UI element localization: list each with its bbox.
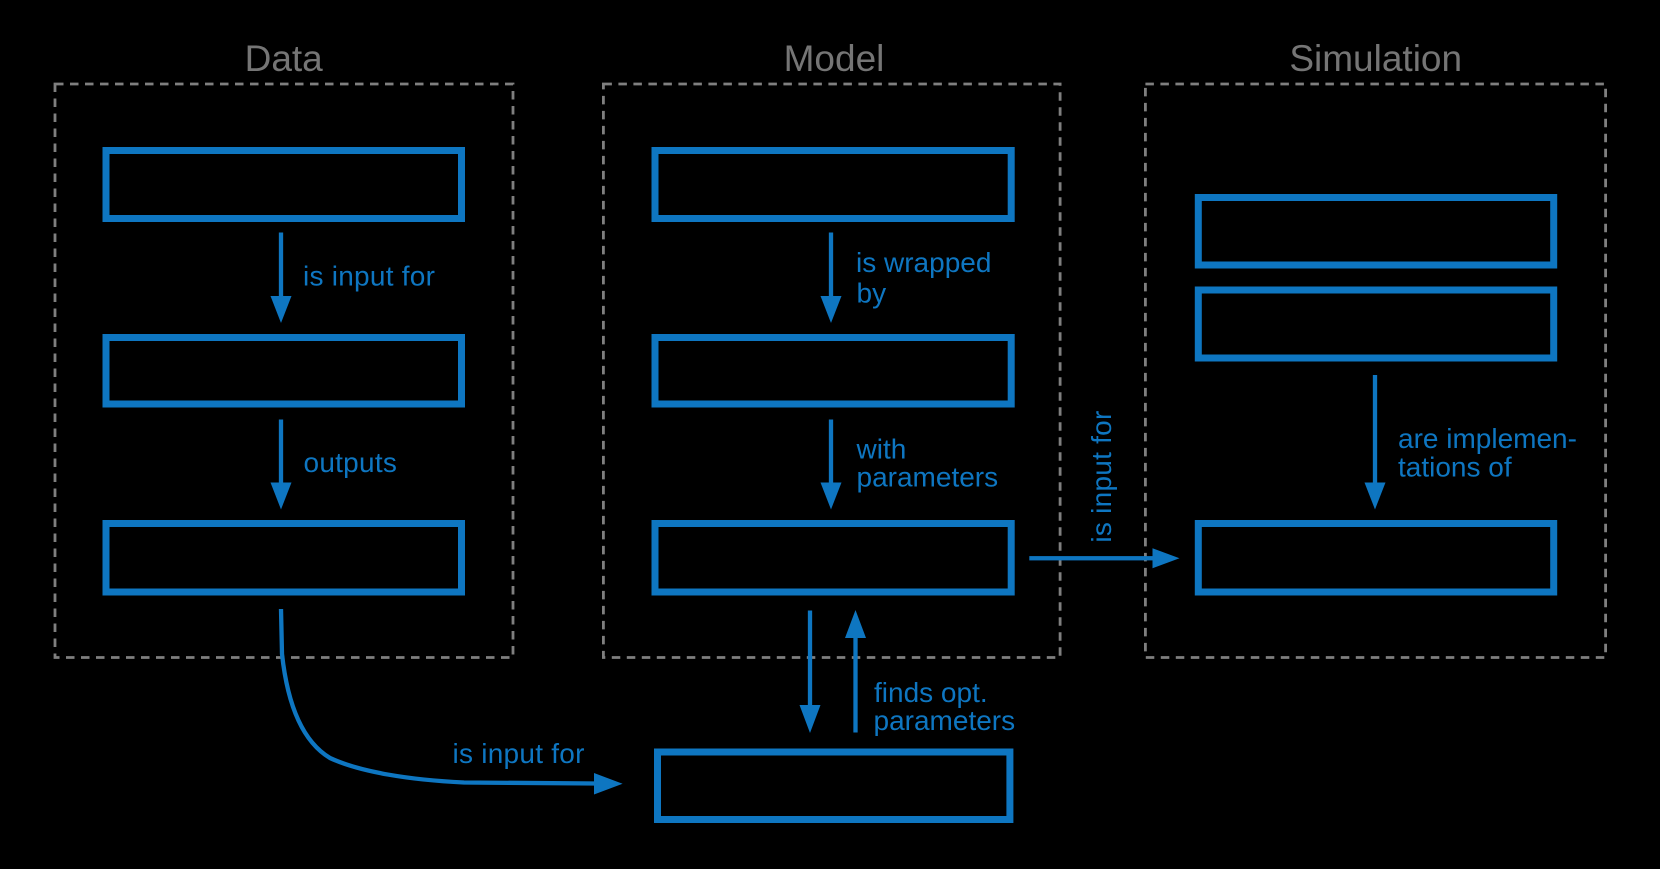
svg-text:outputs: outputs — [304, 447, 398, 478]
svg-text:Model: Model — [784, 38, 885, 79]
svg-text:is input for: is input for — [303, 261, 435, 292]
svg-text:tations of: tations of — [1398, 452, 1512, 483]
svg-text:parameters: parameters — [857, 461, 999, 492]
svg-text:parameters: parameters — [874, 705, 1016, 736]
svg-text:with: with — [856, 434, 907, 465]
svg-text:is wrapped: is wrapped — [856, 247, 991, 278]
svg-text:Simulation: Simulation — [1289, 38, 1462, 79]
svg-text:finds opt.: finds opt. — [874, 677, 988, 708]
svg-text:Data: Data — [245, 38, 324, 79]
svg-text:are implemen-: are implemen- — [1398, 423, 1577, 454]
svg-text:is input for: is input for — [453, 738, 585, 769]
svg-text:by: by — [857, 278, 887, 309]
svg-text:is input for: is input for — [1086, 410, 1117, 542]
